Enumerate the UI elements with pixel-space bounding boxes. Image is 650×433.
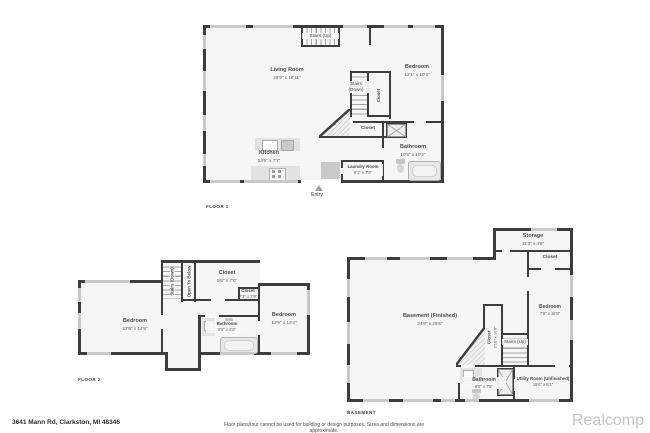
wall: [201, 315, 205, 317]
wall: [319, 136, 391, 138]
kitchen-label: Kitchen23'6" x 7'7": [243, 150, 295, 164]
window: [343, 25, 367, 28]
bedroom-label: Bedroom7'9" x 16'8": [531, 304, 569, 316]
stairs-down-treads: [352, 73, 367, 115]
closet-label: Closet: [369, 80, 389, 110]
bedroom-label: Bedroom12'1" x 10'4": [387, 64, 447, 78]
stair-ramp-icon: [456, 327, 485, 365]
wall: [258, 335, 260, 355]
burner-dot: [272, 175, 275, 178]
closet-label: Closet: [353, 125, 383, 131]
open-to-below-label: Open To Below: [181, 263, 196, 299]
wall: [219, 315, 258, 317]
wall: [555, 268, 573, 270]
window: [465, 399, 479, 402]
basement-finished-label: Basement (Finished)24'8" x 25'5": [390, 313, 470, 327]
burner-dot: [272, 170, 275, 173]
storage-label: Storage11'3" x 4'9": [503, 233, 563, 247]
wall: [527, 291, 529, 367]
bathroom-label: Bathroom10'5" x 10'2": [390, 144, 436, 158]
window: [244, 180, 298, 183]
window: [403, 399, 433, 402]
wall: [475, 365, 527, 367]
wall: [367, 115, 391, 117]
disclaimer-text: Floor plans/tour cannot be used for buil…: [210, 422, 438, 433]
wall: [569, 365, 573, 367]
wall: [527, 268, 541, 270]
wall: [496, 250, 502, 252]
closet-label: Closet: [531, 255, 569, 261]
washer-icon: [321, 162, 340, 179]
window: [384, 25, 408, 28]
window: [203, 71, 206, 91]
burner-dot: [278, 170, 281, 173]
window: [441, 399, 455, 402]
window: [447, 257, 473, 260]
basement-plan: Stairs (Up) Storage11'3": [345, 227, 577, 419]
window: [203, 35, 206, 49]
stairs-down-label: Stairs (Down): [343, 81, 369, 93]
closet-label: Closet7'3" x 2'9": [235, 288, 261, 300]
window: [87, 352, 111, 355]
wall: [527, 365, 555, 367]
bedroom-label: Bedroom22'6" x 14'9": [105, 318, 165, 332]
window: [531, 228, 557, 231]
window: [203, 115, 206, 131]
wall: [165, 368, 201, 371]
wall: [389, 71, 391, 119]
bathtub-icon: [408, 161, 441, 181]
window: [441, 75, 444, 101]
wall: [510, 250, 573, 252]
stairs-up-label: Stairs (Up): [302, 33, 339, 39]
wall: [527, 250, 529, 277]
bathtub-basin: [224, 340, 254, 351]
bathroom-label: Bathroom8'9" x 7'9": [462, 377, 506, 389]
stairs-down-label: Stairs (Down): [163, 263, 181, 299]
living-room-label: Living Room28'9" x 16'11": [252, 67, 322, 81]
window: [78, 288, 81, 302]
window: [271, 352, 297, 355]
window: [78, 313, 81, 329]
bedroom-label: Bedroom13'9" x 12'3": [257, 312, 311, 326]
window: [210, 25, 246, 28]
wall: [301, 45, 340, 47]
wall: [456, 365, 461, 367]
window: [400, 257, 430, 260]
window: [363, 399, 389, 402]
window: [570, 320, 573, 340]
window: [220, 352, 254, 355]
utility-room-label: Utility Room (Unfinished)19'6" x 8'1": [515, 376, 571, 388]
wall: [483, 304, 503, 306]
floor1-title: FLOOR 1: [206, 204, 229, 209]
wall: [493, 228, 496, 257]
window: [570, 275, 573, 297]
wall: [181, 299, 211, 301]
basement-title: BASEMENT: [347, 410, 376, 415]
laundry-room-label: Laundry Room9'1" x 7'9": [343, 164, 383, 176]
bathtub-basin: [412, 165, 437, 177]
property-address: 3641 Mann Rd, Clarkston, MI 48346: [12, 419, 120, 426]
shower-icon: [386, 123, 407, 138]
window: [85, 280, 130, 283]
wall: [426, 121, 441, 123]
entry-label: Entry: [305, 192, 329, 199]
floorplan-page: Stairs (Up) Stairs (Down) Closet Firepla…: [0, 0, 650, 433]
window: [529, 399, 559, 402]
wall: [369, 28, 371, 45]
realcomp-watermark: Realcomp: [572, 412, 644, 430]
window: [365, 257, 387, 260]
wall: [260, 283, 310, 286]
floor1-plan: Stairs (Up) Stairs (Down) Closet Firepla…: [203, 25, 444, 183]
window: [347, 322, 350, 344]
stairs-up-label: Stairs (Up): [502, 339, 528, 345]
floor2-plan: Stairs (Down) Open To Below Closet9'6" x…: [75, 255, 315, 390]
toilet-icon: [397, 164, 404, 173]
window: [347, 365, 350, 383]
wall: [341, 160, 384, 162]
wall: [161, 329, 163, 355]
entry-opening: [301, 180, 341, 183]
window: [203, 154, 206, 166]
wall: [198, 315, 201, 352]
window: [253, 25, 293, 28]
closet-label: Closet2'10" x 10'8": [483, 315, 501, 359]
window: [347, 279, 350, 297]
closet-label: Closet9'6" x 7'0": [201, 270, 253, 284]
wall: [382, 138, 384, 148]
window: [210, 180, 240, 183]
wall: [458, 383, 460, 402]
window: [413, 25, 435, 28]
entry-marker-icon: [315, 185, 323, 191]
floor2-title: FLOOR 2: [78, 377, 101, 382]
bathroom-label: Bathroom9'6" x 4'5": [206, 321, 248, 333]
burner-dot: [278, 175, 281, 178]
